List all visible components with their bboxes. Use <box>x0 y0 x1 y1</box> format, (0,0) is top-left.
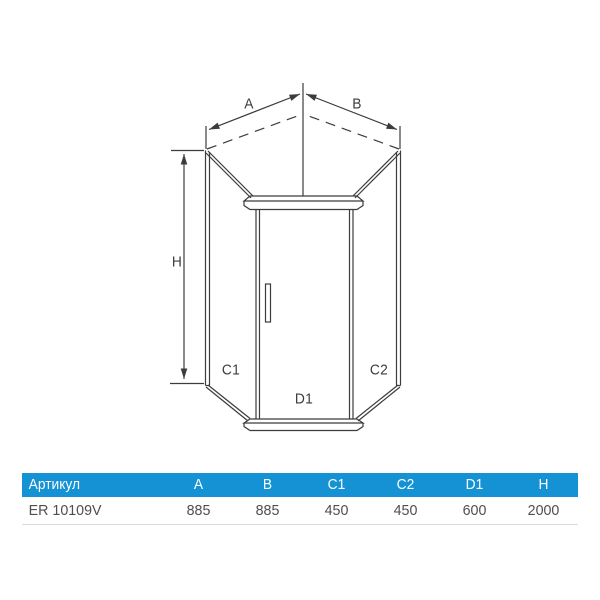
spec-table-header: Артикул A B C1 C2 D1 H <box>22 473 578 497</box>
door-header-mid <box>244 196 363 201</box>
dashed-rim-left <box>207 115 300 149</box>
header-cell-a: A <box>166 477 232 493</box>
bottom-left-angled-edge <box>208 385 250 419</box>
dimension-label-b: B <box>352 96 361 113</box>
top-right-angled-edge <box>353 151 398 196</box>
cell-value-b: 885 <box>235 502 301 519</box>
cell-value-h: 2000 <box>511 502 577 519</box>
dimension-label-c2: C2 <box>370 362 388 379</box>
header-cell-c1: C1 <box>304 477 370 493</box>
dimension-label-d1: D1 <box>295 391 313 408</box>
dashed-rim-right <box>306 115 399 149</box>
dimension-label-h: H <box>172 254 182 271</box>
door-header-bottom <box>244 201 363 210</box>
cell-value-d1: 600 <box>442 502 508 519</box>
bottom-right-angled-edge <box>356 385 398 419</box>
dimension-label-a: A <box>244 96 253 113</box>
dimension-lines <box>170 83 400 384</box>
enclosure-diagram: A B H C1 C2 D1 <box>0 0 600 460</box>
top-left-angled-edge <box>208 151 253 196</box>
cell-article: ER 10109V <box>22 502 157 519</box>
spec-table-row: ER 10109V 885 885 450 450 600 2000 <box>22 497 578 525</box>
spec-table: Артикул A B C1 C2 D1 H ER 10109V 885 885… <box>22 473 578 525</box>
header-cell-b: B <box>235 477 301 493</box>
header-cell-c2: C2 <box>373 477 439 493</box>
cell-value-c2: 450 <box>373 502 439 519</box>
tray-bottom <box>244 423 363 431</box>
cell-value-c1: 450 <box>304 502 370 519</box>
door-handle <box>266 284 271 322</box>
dimension-label-c1: C1 <box>222 362 240 379</box>
product-card: A B H C1 C2 D1 Артикул A B C1 C2 D1 H ER… <box>0 0 600 600</box>
dimension-arrow-a <box>209 94 300 130</box>
header-cell-article: Артикул <box>22 477 157 493</box>
header-cell-d1: D1 <box>442 477 508 493</box>
cell-value-a: 885 <box>166 502 232 519</box>
header-cell-h: H <box>511 477 577 493</box>
